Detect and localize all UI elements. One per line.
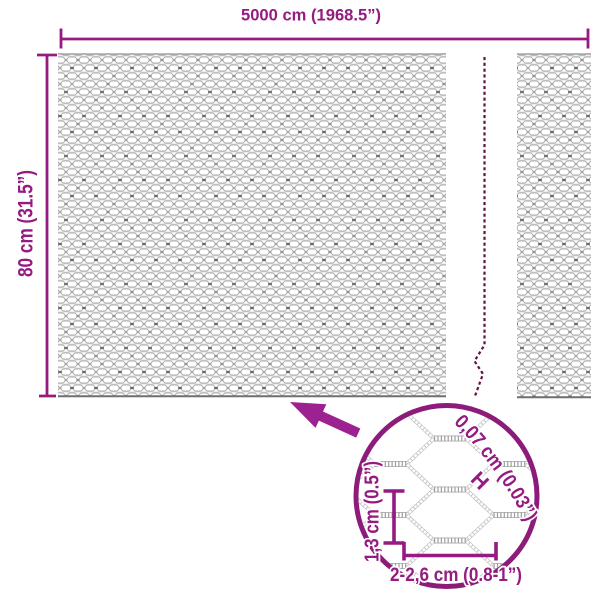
svg-text:2-2,6 cm (0.8-1”): 2-2,6 cm (0.8-1”): [390, 565, 522, 586]
svg-text:1,3 cm (0.5”): 1,3 cm (0.5”): [362, 461, 384, 562]
svg-text:80 cm (31.5”): 80 cm (31.5”): [13, 170, 37, 277]
svg-text:5000 cm (1968.5”): 5000 cm (1968.5”): [241, 7, 381, 25]
